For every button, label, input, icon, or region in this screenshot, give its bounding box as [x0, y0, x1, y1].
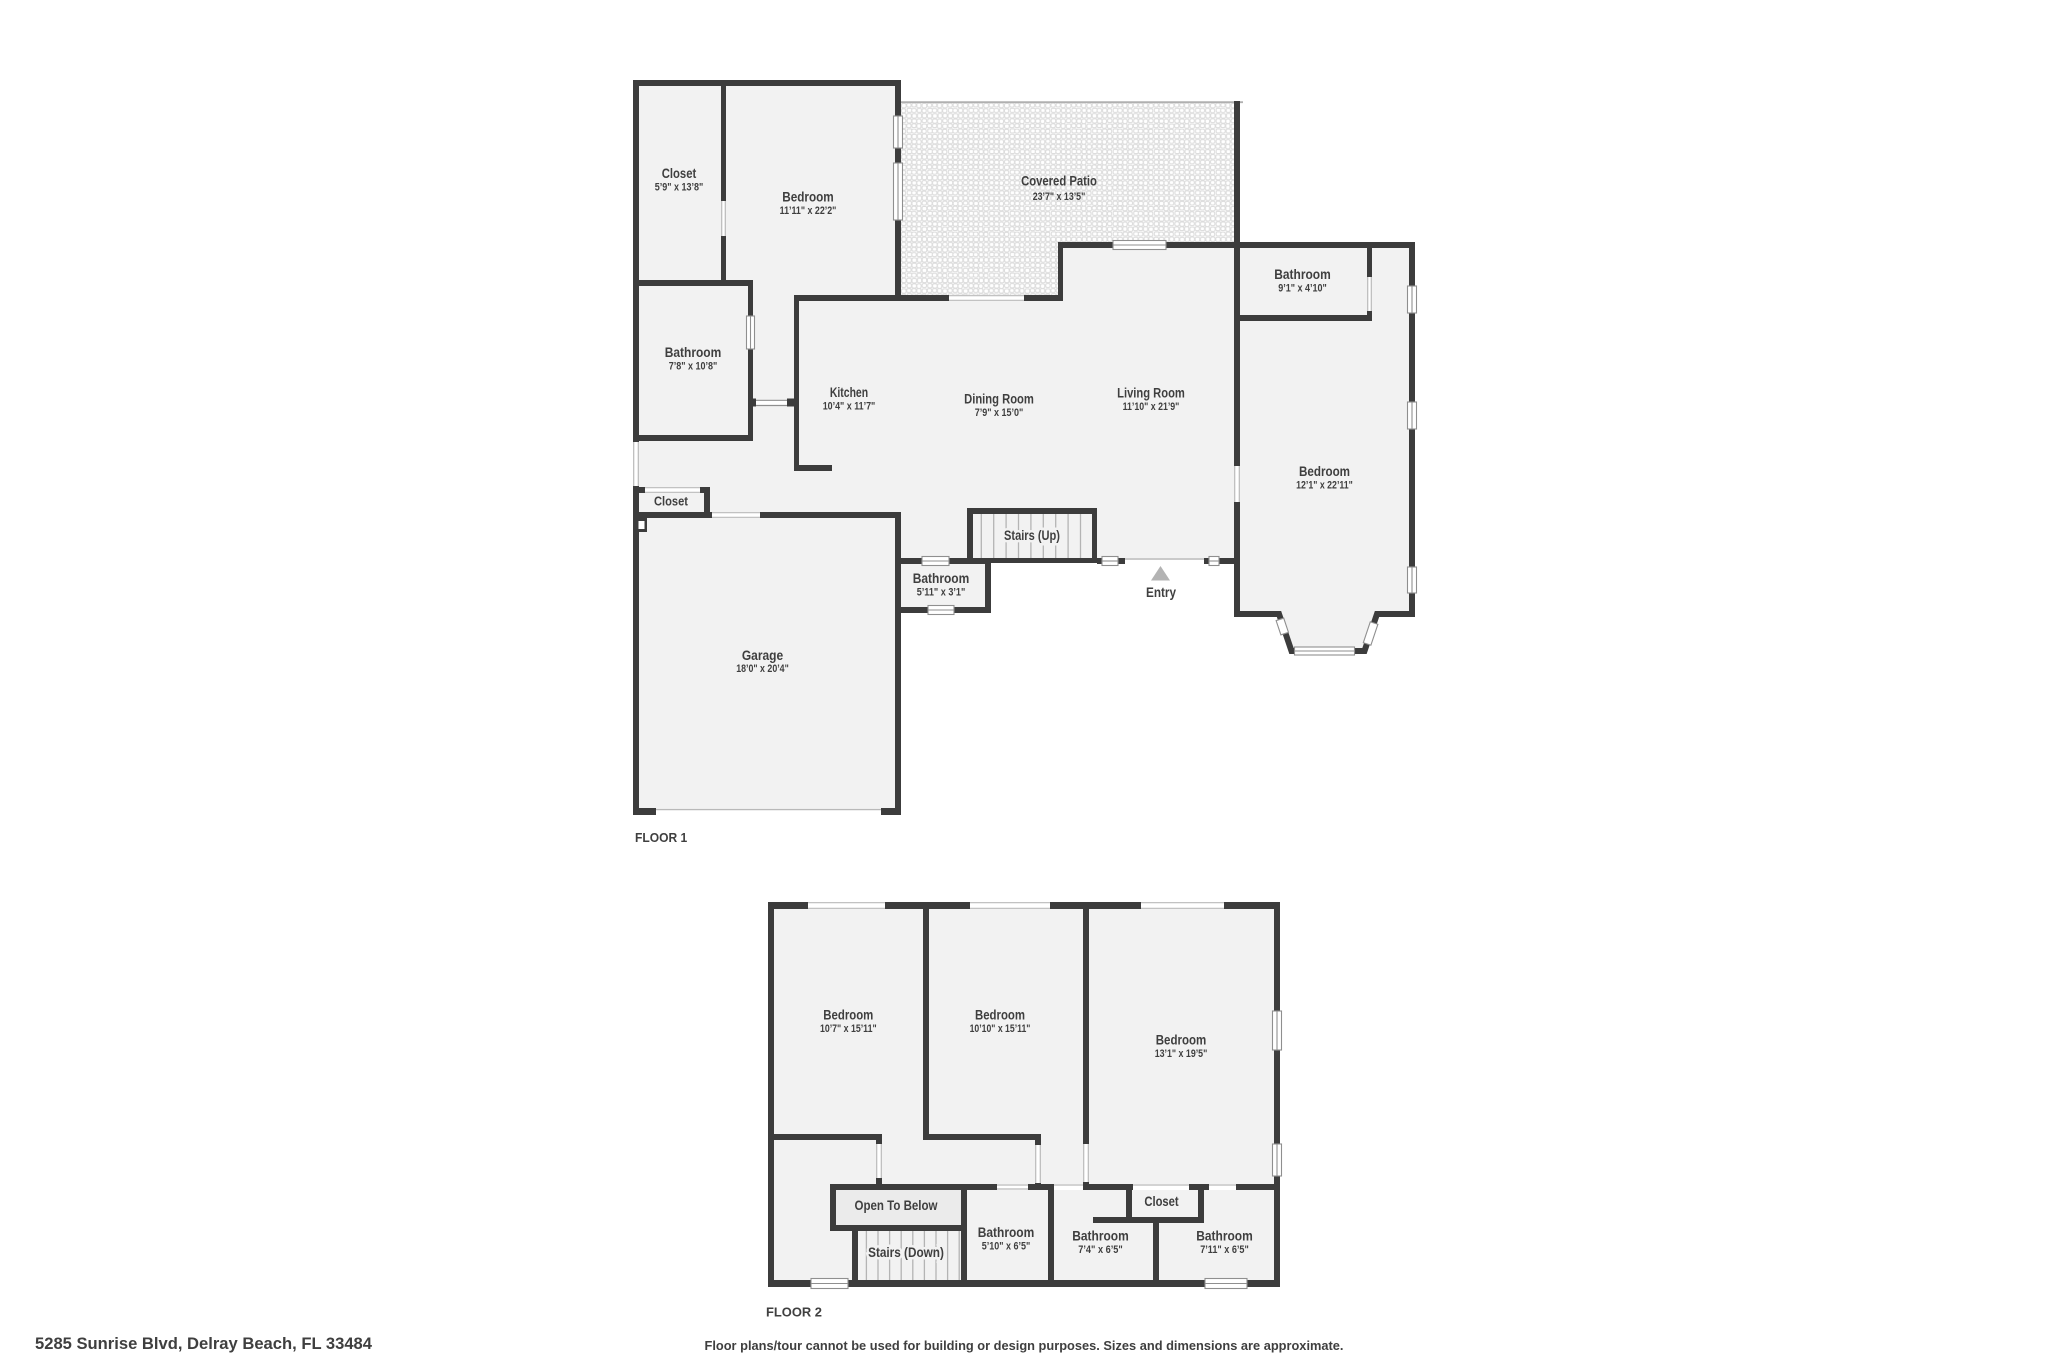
svg-text:Covered Patio: Covered Patio: [1021, 174, 1097, 189]
svg-text:Stairs (Down): Stairs (Down): [868, 1245, 944, 1260]
svg-text:5’9" x 13’8": 5’9" x 13’8": [655, 182, 704, 194]
svg-text:Bathroom: Bathroom: [1072, 1229, 1129, 1244]
svg-text:5’10" x 6’5": 5’10" x 6’5": [982, 1241, 1031, 1253]
svg-text:FLOOR 2: FLOOR 2: [766, 1305, 822, 1320]
svg-text:10’10" x 15’11": 10’10" x 15’11": [970, 1023, 1031, 1035]
svg-text:Bedroom: Bedroom: [782, 190, 834, 205]
svg-text:Stairs (Up): Stairs (Up): [1004, 528, 1060, 543]
svg-text:Bathroom: Bathroom: [1274, 267, 1331, 282]
svg-text:5’11" x 3’1": 5’11" x 3’1": [917, 587, 966, 599]
svg-text:Closet: Closet: [654, 495, 689, 509]
svg-text:Bedroom: Bedroom: [975, 1008, 1025, 1023]
svg-text:9’1" x 4’10": 9’1" x 4’10": [1278, 283, 1327, 295]
svg-text:7’11" x 6’5": 7’11" x 6’5": [1200, 1244, 1249, 1256]
svg-text:Bathroom: Bathroom: [1196, 1229, 1253, 1244]
svg-text:Bedroom: Bedroom: [823, 1008, 873, 1023]
svg-text:Bathroom: Bathroom: [913, 571, 970, 586]
svg-text:FLOOR 1: FLOOR 1: [635, 830, 687, 845]
svg-text:5285 Sunrise Blvd, Delray Beac: 5285 Sunrise Blvd, Delray Beach, FL 3348…: [35, 1335, 373, 1353]
svg-text:10’4" x 11’7": 10’4" x 11’7": [823, 401, 876, 413]
svg-text:7’8" x 10’8": 7’8" x 10’8": [669, 361, 718, 373]
svg-text:11’11" x 22’2": 11’11" x 22’2": [780, 205, 837, 217]
svg-text:Bedroom: Bedroom: [1156, 1033, 1207, 1048]
svg-text:13’1" x 19’5": 13’1" x 19’5": [1155, 1048, 1208, 1060]
svg-text:Bathroom: Bathroom: [978, 1225, 1035, 1240]
svg-text:Open To Below: Open To Below: [855, 1198, 938, 1213]
svg-text:Living Room: Living Room: [1117, 386, 1185, 401]
svg-text:12’1" x 22’11": 12’1" x 22’11": [1296, 480, 1353, 492]
svg-text:Entry: Entry: [1146, 585, 1176, 600]
svg-text:Floor plans/tour cannot be use: Floor plans/tour cannot be used for buil…: [705, 1338, 1344, 1353]
svg-text:Closet: Closet: [662, 166, 697, 181]
svg-text:23’7" x 13’5": 23’7" x 13’5": [1033, 191, 1086, 203]
svg-text:7’9" x 15’0": 7’9" x 15’0": [975, 407, 1024, 419]
svg-text:Garage: Garage: [742, 648, 783, 663]
svg-text:10’7" x 15’11": 10’7" x 15’11": [820, 1023, 877, 1035]
svg-text:Closet: Closet: [1144, 1194, 1179, 1209]
svg-text:11’10" x 21’9": 11’10" x 21’9": [1123, 401, 1180, 413]
svg-text:Bathroom: Bathroom: [665, 345, 722, 360]
svg-text:7’4" x 6’5": 7’4" x 6’5": [1078, 1244, 1123, 1256]
svg-text:Dining Room: Dining Room: [964, 392, 1034, 407]
svg-text:Kitchen: Kitchen: [830, 385, 868, 400]
svg-text:Bedroom: Bedroom: [1299, 464, 1350, 479]
svg-text:18’0" x 20’4": 18’0" x 20’4": [736, 663, 789, 675]
